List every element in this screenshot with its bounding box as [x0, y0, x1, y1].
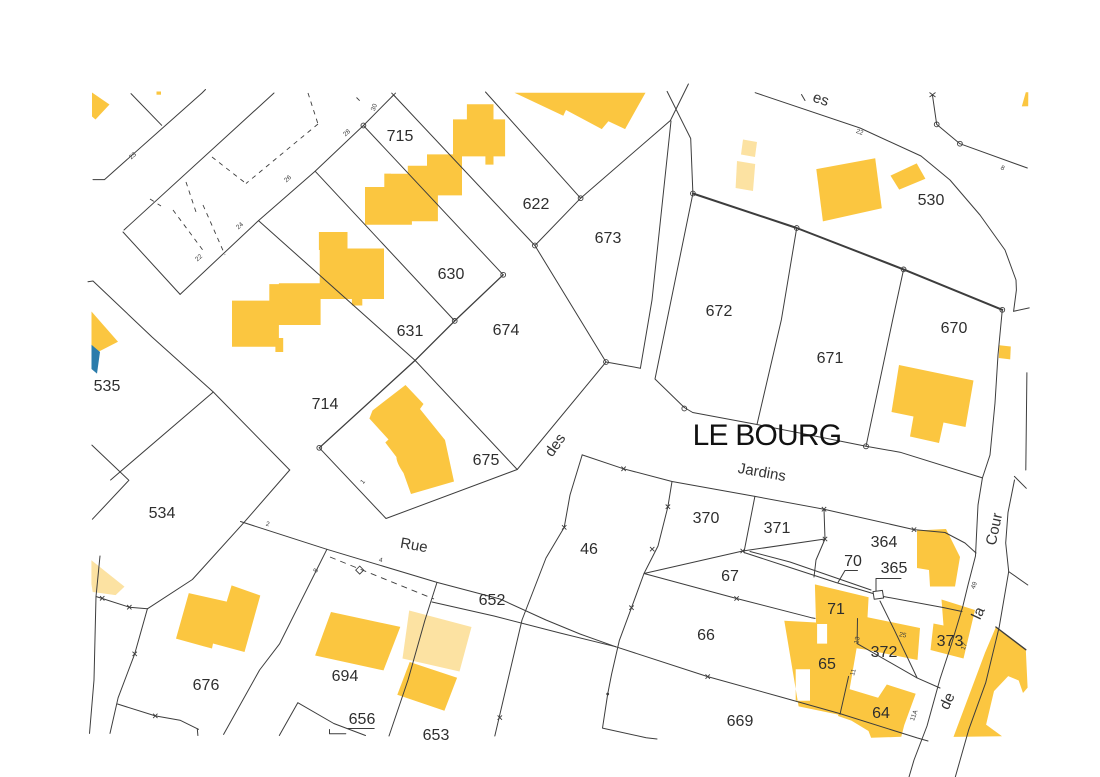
svg-text:372: 372	[871, 644, 898, 661]
svg-text:534: 534	[149, 505, 176, 522]
svg-text:65: 65	[818, 656, 836, 673]
svg-text:676: 676	[193, 677, 220, 694]
svg-text:70: 70	[844, 553, 862, 570]
svg-text:673: 673	[595, 230, 622, 247]
svg-text:71: 71	[827, 601, 845, 618]
svg-text:371: 371	[764, 520, 791, 537]
svg-text:66: 66	[697, 627, 715, 644]
svg-text:669: 669	[727, 713, 754, 730]
svg-text:631: 631	[397, 323, 424, 340]
svg-text:670: 670	[941, 320, 968, 337]
svg-text:370: 370	[693, 510, 720, 527]
svg-text:671: 671	[817, 350, 844, 367]
svg-text:LE BOURG: LE BOURG	[693, 419, 842, 452]
svg-text:630: 630	[438, 266, 465, 283]
svg-text:67: 67	[721, 568, 739, 585]
svg-text:656: 656	[349, 711, 376, 728]
svg-text:622: 622	[523, 196, 550, 213]
svg-text:535: 535	[94, 378, 121, 395]
svg-text:694: 694	[332, 668, 359, 685]
svg-text:365: 365	[881, 560, 908, 577]
svg-text:530: 530	[918, 192, 945, 209]
svg-text:714: 714	[312, 396, 339, 413]
svg-text:64: 64	[872, 705, 890, 722]
svg-text:672: 672	[706, 303, 733, 320]
svg-text:653: 653	[423, 727, 450, 744]
svg-text:364: 364	[871, 534, 898, 551]
svg-text:715: 715	[387, 128, 414, 145]
svg-text:674: 674	[493, 322, 520, 339]
svg-text:652: 652	[479, 592, 506, 609]
svg-text:675: 675	[473, 452, 500, 469]
svg-text:46: 46	[580, 541, 598, 558]
